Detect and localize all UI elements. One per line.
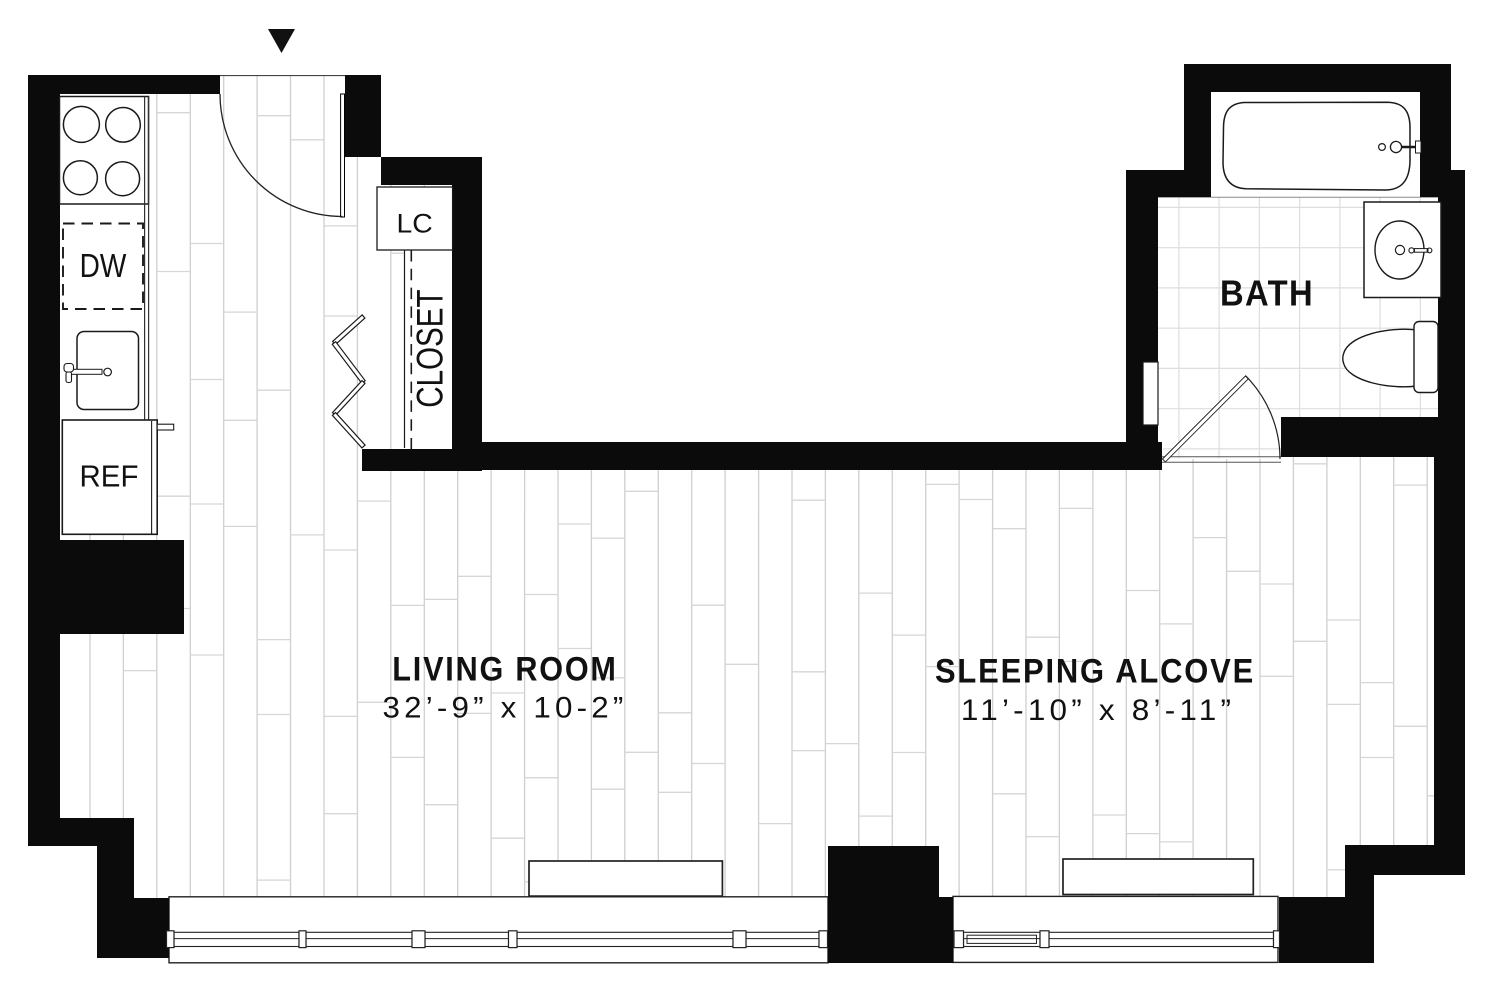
svg-text:11’-10” x 8’-11”: 11’-10” x 8’-11” [961,693,1235,727]
svg-text:LC: LC [396,208,432,238]
svg-text:32’-9” x 10-2”: 32’-9” x 10-2” [383,690,628,724]
svg-text:DW: DW [80,248,127,285]
svg-text:REF: REF [80,460,139,494]
svg-text:SLEEPING ALCOVE: SLEEPING ALCOVE [935,652,1255,690]
svg-text:LIVING ROOM: LIVING ROOM [392,650,617,688]
svg-text:CLOSET: CLOSET [410,289,451,407]
svg-text:BATH: BATH [1220,274,1314,314]
